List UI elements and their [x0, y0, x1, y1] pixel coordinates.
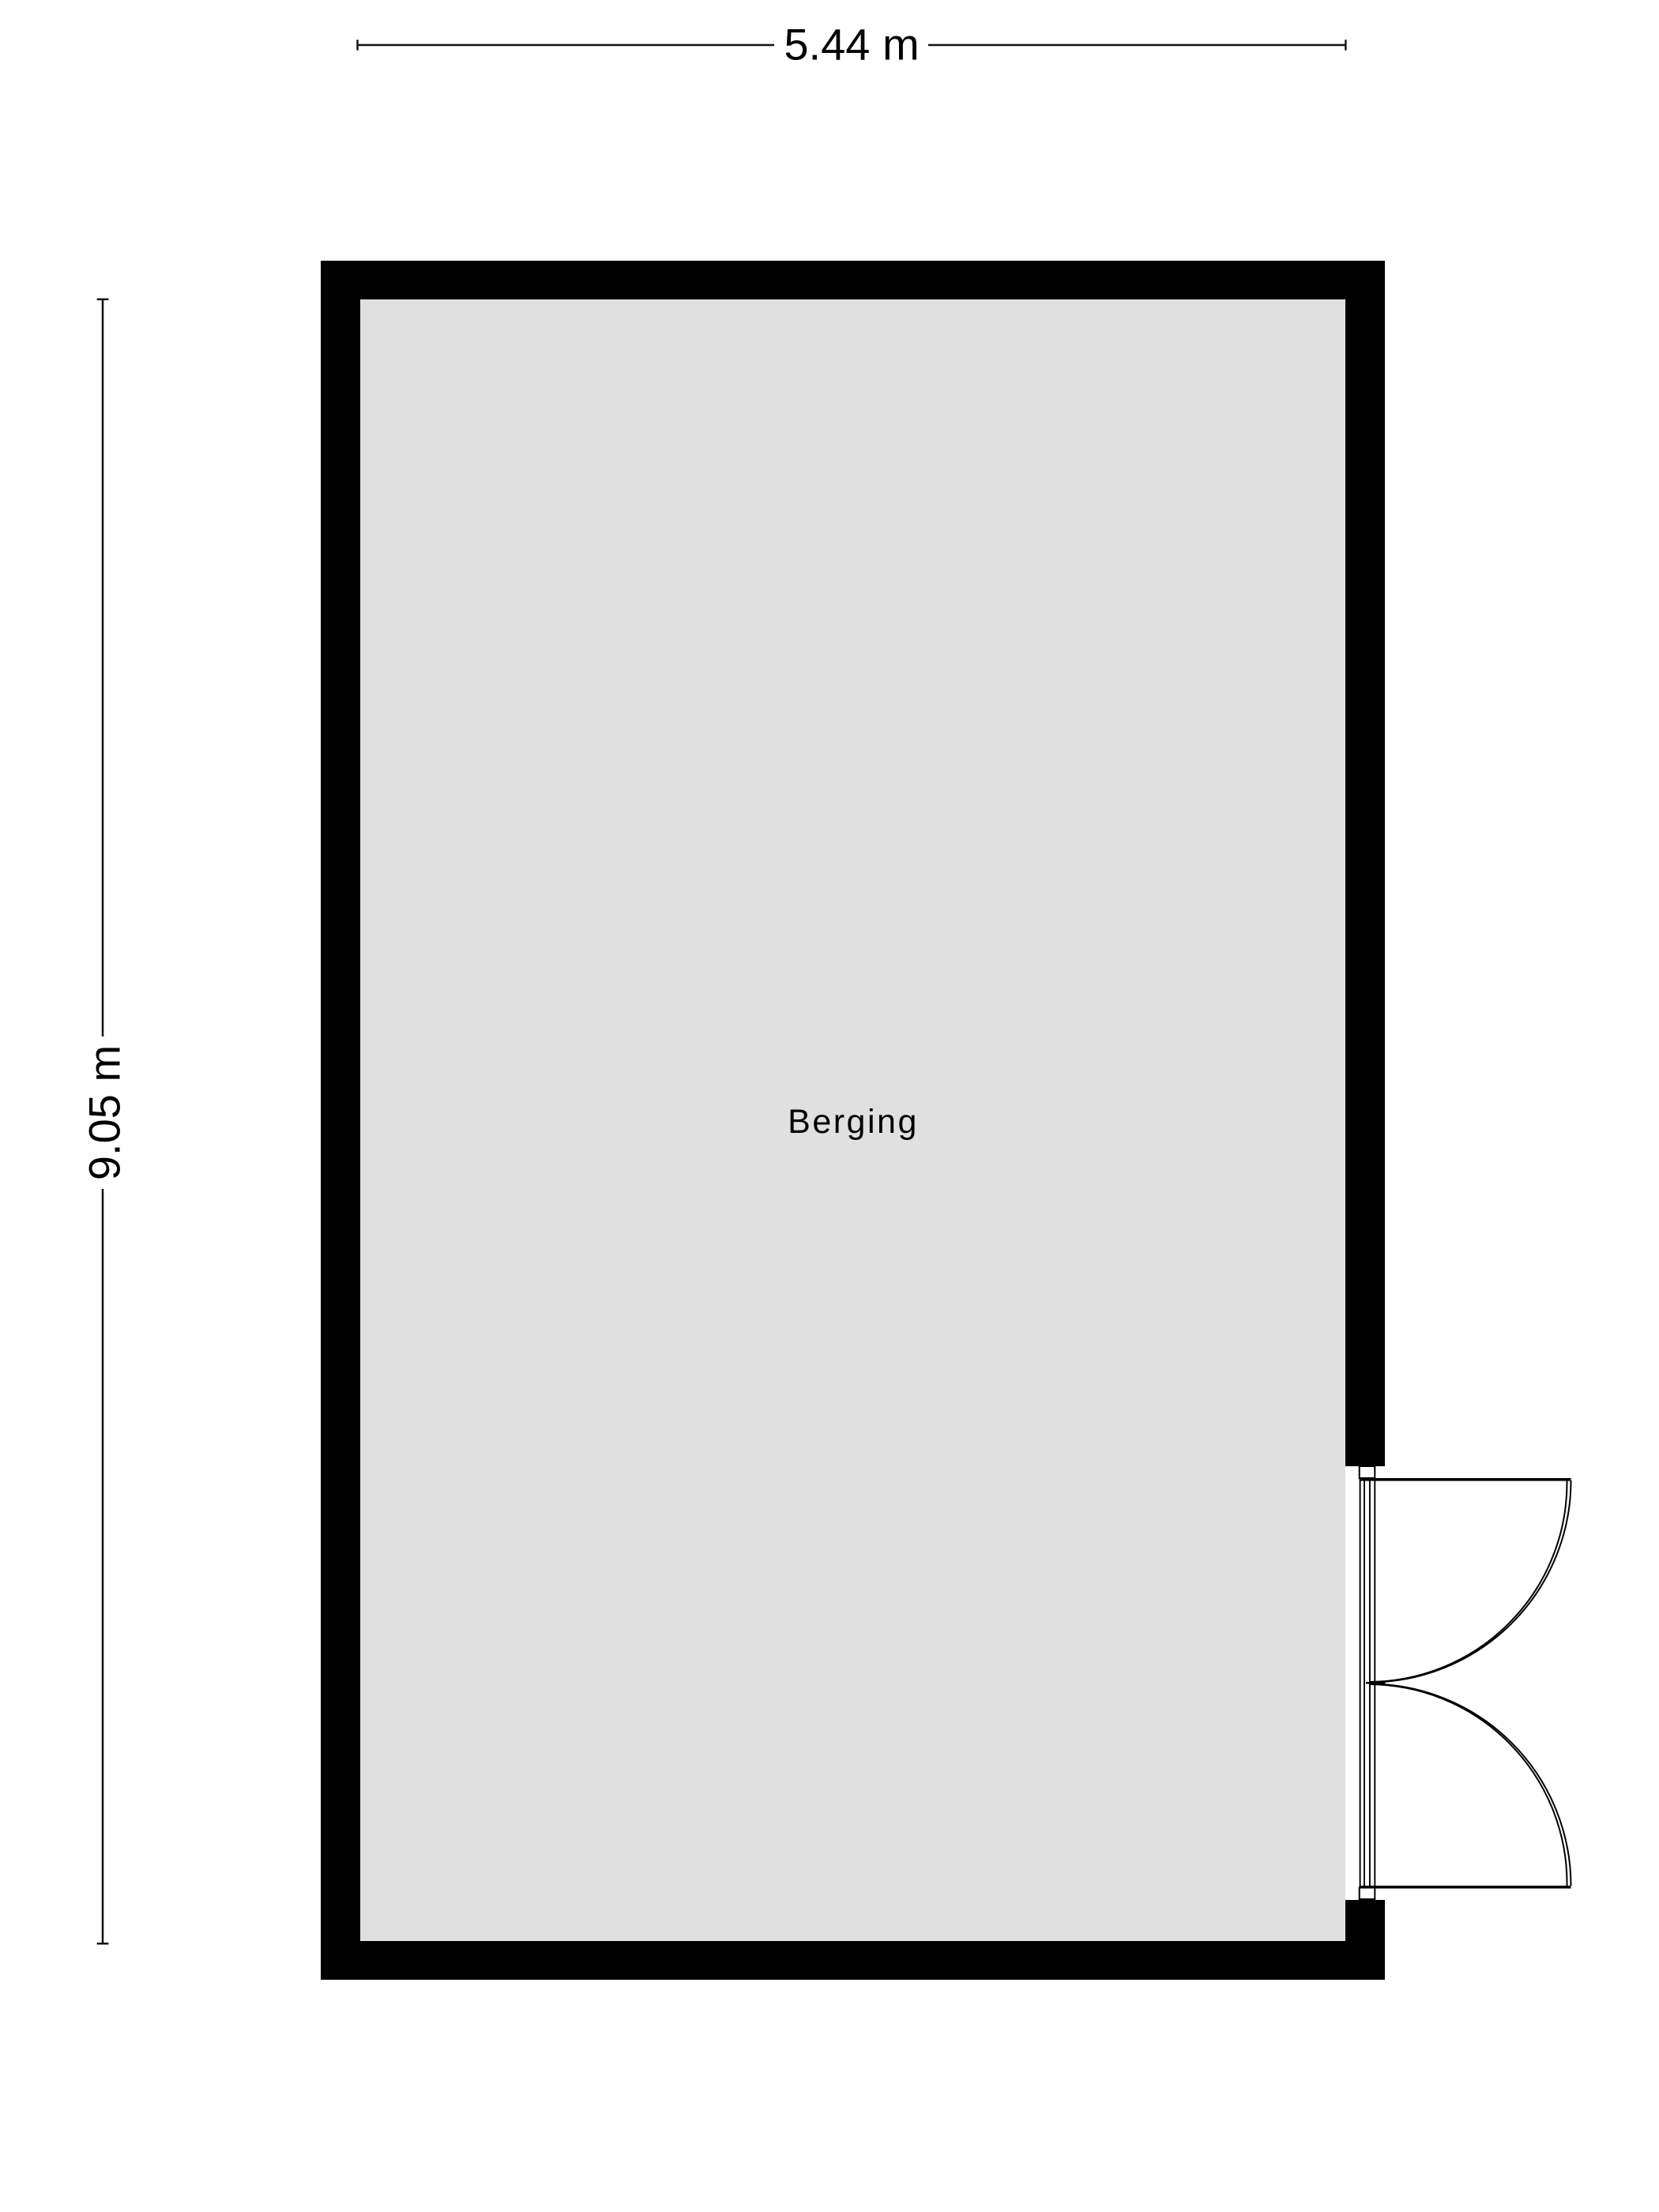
svg-text:5.44 m: 5.44 m: [784, 20, 919, 70]
svg-text:9.05 m: 9.05 m: [80, 1045, 130, 1180]
svg-text:Berging: Berging: [788, 1103, 919, 1141]
